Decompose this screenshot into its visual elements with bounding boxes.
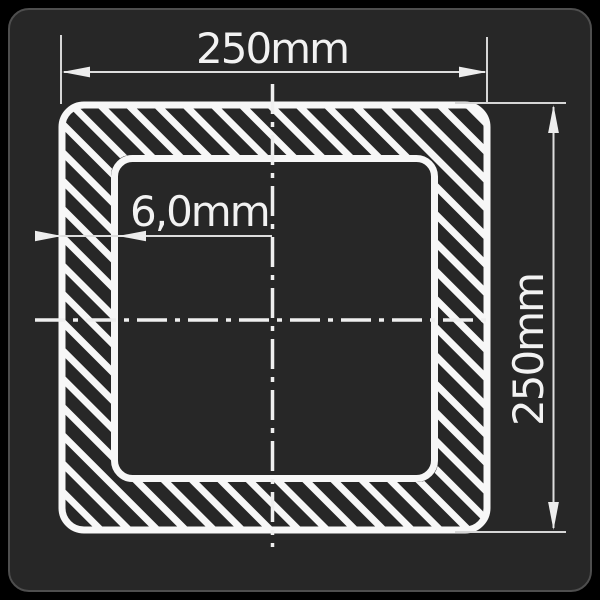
- wall-thickness-label: 6,0mm: [130, 187, 269, 236]
- drawing-canvas: 250mm 250mm 6,0mm: [0, 0, 600, 600]
- width-dimension-label: 250mm: [196, 24, 348, 73]
- height-dimension-label: 250mm: [504, 274, 553, 426]
- technical-drawing: 250mm 250mm 6,0mm: [0, 0, 600, 600]
